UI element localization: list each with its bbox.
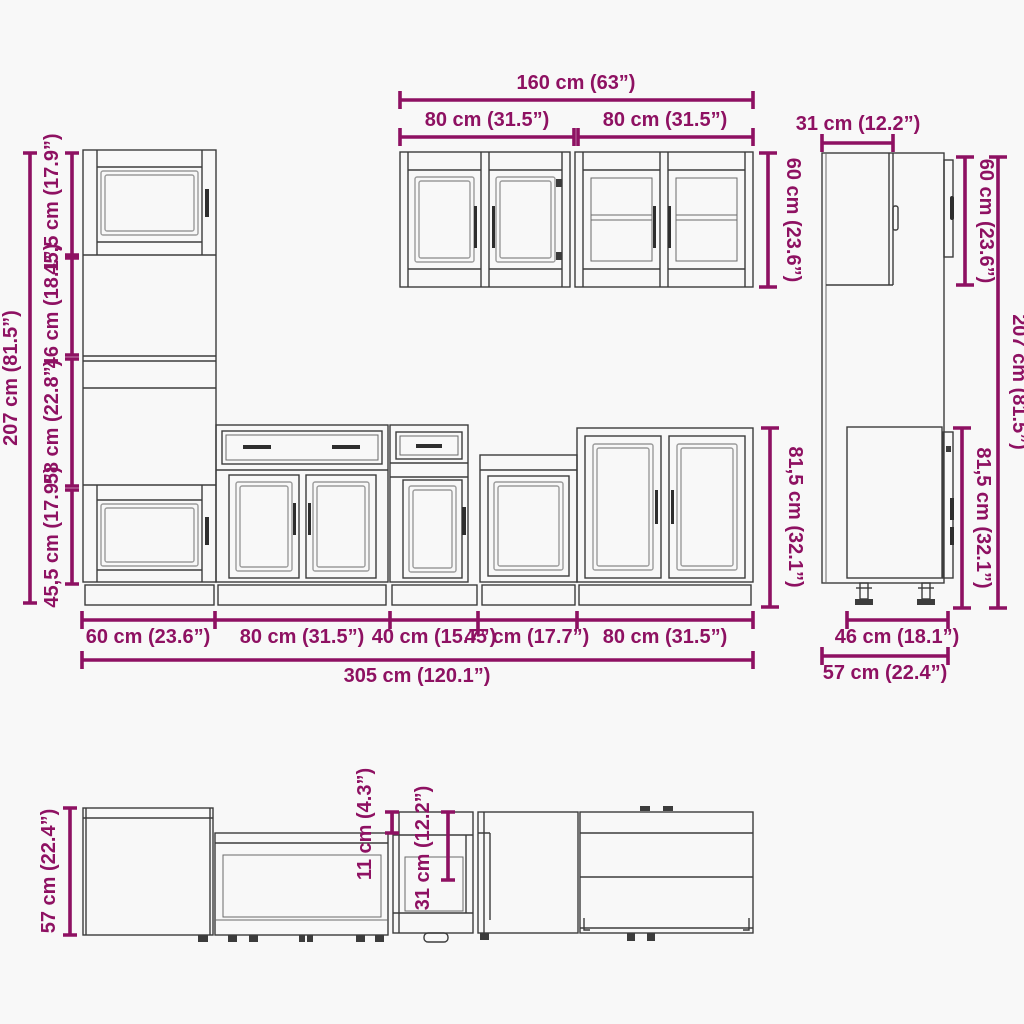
dim-label-wall-total: 160 cm (63”) bbox=[517, 72, 636, 94]
base45-door-panel bbox=[494, 482, 563, 570]
drawer-handle-left bbox=[243, 445, 271, 449]
drawer-handle-right bbox=[332, 445, 360, 449]
plan-unit-45 bbox=[478, 812, 578, 940]
dim-label-side-wall-height: 60 cm (23.6”) bbox=[975, 159, 997, 284]
dim-label-width-45: 45 cm (17.7”) bbox=[465, 626, 590, 648]
plan80b-hinge1 bbox=[640, 806, 650, 811]
plan80b-foot1 bbox=[627, 933, 635, 941]
base-cabinet-40-drawer bbox=[390, 425, 477, 605]
dim-label-side-base-depth: 46 cm (18.1”) bbox=[835, 626, 960, 648]
foot bbox=[228, 935, 237, 942]
wall-right-handle2 bbox=[668, 206, 671, 248]
dim-wall-height bbox=[759, 153, 777, 287]
base80a-body bbox=[216, 425, 388, 582]
bottom-door-panel bbox=[101, 504, 198, 566]
adjustable-feet bbox=[855, 583, 935, 605]
dim-label-width-80a: 80 cm (31.5”) bbox=[240, 626, 365, 648]
dim-label-side-total-height: 207 cm (81.5”) bbox=[1008, 314, 1024, 450]
wall-left-door1-panel bbox=[415, 177, 474, 262]
plan-unit-80b bbox=[580, 806, 753, 941]
base80a-handle1 bbox=[293, 503, 296, 535]
foot-plate-left bbox=[855, 599, 873, 605]
top-door-panel bbox=[101, 171, 198, 235]
dim-side-depth-top bbox=[822, 134, 893, 152]
base-cabinet-80-drawer bbox=[216, 425, 388, 605]
dim-label-left-total: 207 cm (81.5”) bbox=[0, 310, 22, 446]
foot bbox=[249, 935, 258, 942]
foot-stem-right bbox=[922, 583, 930, 599]
wall-cabinet-right-80-glass bbox=[575, 152, 753, 287]
dim-plan-depth bbox=[63, 808, 77, 935]
side-base-handle1 bbox=[950, 498, 954, 520]
dim-plan-offset bbox=[385, 812, 399, 833]
plan45-outline bbox=[478, 812, 578, 933]
base40-handle bbox=[462, 507, 466, 535]
bottom-door-handle bbox=[205, 517, 209, 545]
base80b-door1-panel-inner bbox=[597, 448, 649, 566]
wall-left-door2-panel bbox=[496, 177, 555, 262]
plan45-foot bbox=[480, 933, 489, 940]
plan80b-outline bbox=[580, 812, 753, 933]
base80a-door1-panel bbox=[236, 482, 292, 571]
dim-label-plan-appliance-depth: 31 cm (12.2”) bbox=[412, 786, 434, 911]
bottom-door-panel-inner bbox=[105, 508, 194, 562]
wall-cabinet-left-80 bbox=[400, 152, 570, 287]
tall-cabinet-60 bbox=[83, 150, 216, 605]
base80b-handle2 bbox=[671, 490, 674, 524]
plan45-lines bbox=[478, 812, 490, 933]
glass-door1-shelf-line bbox=[591, 215, 652, 220]
dim-label-plan-depth: 57 cm (22.4”) bbox=[38, 809, 60, 934]
base45-door bbox=[488, 476, 569, 576]
side-wall-handle bbox=[893, 206, 898, 230]
base-cabinet-80-doors bbox=[577, 428, 753, 605]
base80a-door2-panel-inner bbox=[317, 486, 365, 567]
base80b-handle1 bbox=[655, 490, 658, 524]
dim-label-total-width: 305 cm (120.1”) bbox=[344, 665, 491, 687]
foot bbox=[375, 935, 384, 942]
dim-left-total bbox=[23, 153, 37, 603]
base80b-door1-panel bbox=[593, 444, 653, 570]
foot bbox=[299, 935, 305, 942]
bottom-door-frame bbox=[97, 485, 202, 582]
dim-label-base-height: 81,5 cm (32.1”) bbox=[784, 446, 806, 587]
dim-label-left-seg2: 46 cm (18.1”) bbox=[41, 244, 63, 369]
wall-left-door2-panel-inner bbox=[500, 181, 551, 258]
glass-door2-shelf-line bbox=[676, 215, 737, 220]
dim-label-side-depth-top: 31 cm (12.2”) bbox=[796, 113, 921, 135]
dim-left-seg3 bbox=[65, 359, 79, 486]
plan60-lines bbox=[83, 808, 213, 935]
base80a-plinth bbox=[218, 585, 386, 605]
carcass-lines bbox=[83, 255, 216, 485]
foot bbox=[307, 935, 313, 942]
plan80b-lines bbox=[580, 833, 753, 928]
wall-left-handle1 bbox=[474, 206, 477, 248]
base40-door bbox=[403, 480, 462, 578]
dim-left-seg2 bbox=[65, 258, 79, 355]
side-upper-handle bbox=[950, 196, 954, 220]
dim-label-plan-offset: 11 cm (4.3”) bbox=[354, 768, 376, 880]
dim-side-base-height bbox=[953, 428, 971, 608]
dim-label-width-80b: 80 cm (31.5”) bbox=[603, 626, 728, 648]
base40-drawer-handle bbox=[416, 444, 442, 448]
plan60-outline bbox=[83, 808, 213, 935]
foot-stem-left bbox=[860, 583, 868, 599]
base40-plinth bbox=[392, 585, 477, 605]
plan80b-foot2 bbox=[647, 933, 655, 941]
wall-left-body bbox=[400, 152, 570, 287]
plan80b-hinge2 bbox=[663, 806, 673, 811]
plan-unit-60 bbox=[83, 808, 213, 942]
hinge-mark-bottom bbox=[556, 252, 562, 260]
foot-plate-right bbox=[917, 599, 935, 605]
plan40-foot bbox=[424, 933, 448, 942]
base40-door-panel-inner bbox=[413, 490, 452, 568]
hinge-mark-top bbox=[556, 179, 562, 187]
tall-cabinet-body bbox=[83, 150, 216, 582]
side-view bbox=[822, 153, 954, 605]
dim-left-seg4 bbox=[65, 490, 79, 584]
base80b-door2-panel bbox=[677, 444, 737, 570]
base80b-door2-panel-inner bbox=[681, 448, 733, 566]
top-door-panel-inner bbox=[105, 175, 194, 231]
dim-base-height bbox=[761, 428, 779, 607]
dim-label-left-seg3: 58 cm (22.8”) bbox=[41, 360, 63, 485]
kitchen-drawing-svg: 45,5 cm (17.9”) 46 cm (18.1”) 58 cm (22.… bbox=[0, 0, 1024, 1024]
base80a-door1-panel-inner bbox=[240, 486, 288, 567]
base40-door-panel bbox=[409, 486, 456, 572]
dim-label-side-total-depth: 57 cm (22.4”) bbox=[823, 662, 948, 684]
dim-label-side-base-height: 81,5 cm (32.1”) bbox=[972, 447, 994, 588]
dim-label-left-seg4: 45,5 cm (17.9”) bbox=[41, 466, 63, 607]
side-tall-body bbox=[822, 153, 944, 583]
plan80a-feet bbox=[228, 935, 384, 942]
base80a-door2-panel bbox=[313, 482, 369, 571]
dim-left-seg1 bbox=[65, 153, 79, 255]
tall-cabinet-plinth bbox=[85, 585, 214, 605]
foot bbox=[356, 935, 365, 942]
side-base-body bbox=[847, 427, 942, 578]
wall-left-frames bbox=[408, 152, 562, 287]
base-cabinet-45 bbox=[480, 455, 577, 605]
dim-label-wall-left: 80 cm (31.5”) bbox=[425, 109, 550, 131]
wall-left-door1-panel-inner bbox=[419, 181, 470, 258]
wall-left-handle2 bbox=[492, 206, 495, 248]
technical-drawing-canvas: 45,5 cm (17.9”) 46 cm (18.1”) 58 cm (22.… bbox=[0, 0, 1024, 1024]
base80b-plinth bbox=[579, 585, 751, 605]
dim-plan-appliance-depth bbox=[441, 812, 455, 880]
base80b-body bbox=[577, 428, 753, 582]
side-base-handle2 bbox=[950, 527, 954, 545]
wall-right-handle1 bbox=[653, 206, 656, 248]
plan60-foot bbox=[198, 935, 208, 942]
base45-door-panel-inner bbox=[498, 486, 559, 566]
dim-label-wall-right: 80 cm (31.5”) bbox=[603, 109, 728, 131]
base80a-handle2 bbox=[308, 503, 311, 535]
front-view bbox=[83, 150, 753, 605]
side-hinge-mark bbox=[946, 446, 951, 452]
top-door-handle bbox=[205, 189, 209, 217]
side-wall-cabinet bbox=[826, 153, 893, 285]
dim-label-wall-height: 60 cm (23.6”) bbox=[782, 158, 804, 283]
top-door-frame bbox=[97, 150, 202, 255]
base45-plinth bbox=[482, 585, 575, 605]
base40-rails bbox=[390, 463, 468, 477]
dim-side-wall-height bbox=[956, 157, 974, 285]
dim-label-width-60: 60 cm (23.6”) bbox=[86, 626, 211, 648]
